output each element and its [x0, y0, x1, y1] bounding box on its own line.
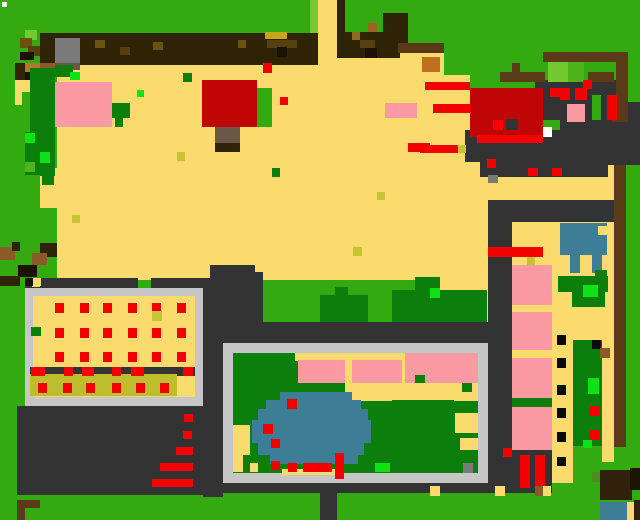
map-rect [557, 432, 566, 442]
map-rect [17, 508, 25, 520]
pink-plot-1 [512, 265, 552, 305]
map-rect [18, 265, 37, 277]
east-horizontal-path [488, 200, 617, 222]
rock [55, 38, 80, 63]
map-rect [420, 145, 458, 153]
map-rect [40, 152, 50, 163]
map-rect [131, 367, 144, 376]
map-rect [112, 383, 121, 393]
map-rect [31, 327, 41, 336]
map-rect [12, 242, 20, 251]
map-rect [128, 303, 137, 313]
map-rect [567, 104, 585, 122]
map-rect [433, 104, 471, 113]
map-rect [500, 72, 545, 82]
map-rect [55, 352, 64, 362]
map-rect [280, 97, 288, 105]
map-rect [377, 192, 385, 200]
map-rect [271, 461, 280, 470]
map-rect [160, 463, 193, 471]
red-house [202, 80, 257, 127]
map-rect [80, 328, 89, 338]
map-rect [15, 63, 25, 72]
map-rect [152, 479, 193, 487]
bushes [320, 295, 368, 322]
map-rect [177, 152, 185, 161]
corner-marker [2, 2, 7, 7]
south-path-stub [320, 493, 337, 520]
west-path [25, 278, 138, 288]
map-rect [86, 383, 95, 393]
tree-line [30, 68, 55, 138]
map-rect [353, 247, 362, 256]
map-rect [63, 383, 72, 393]
map-rect [495, 486, 505, 496]
map-rect [493, 120, 503, 130]
game-screen [0, 0, 640, 520]
map-rect [152, 311, 162, 321]
map-rect [560, 120, 640, 165]
map-rect [263, 424, 273, 434]
map-rect [592, 472, 600, 482]
pink-plot-3 [512, 358, 552, 398]
map-rect [277, 47, 287, 57]
map-rect [458, 145, 466, 153]
map-rect [33, 278, 41, 286]
map-rect [55, 328, 64, 338]
map-rect [480, 160, 608, 177]
map-rect [634, 500, 640, 520]
game-map[interactable] [0, 0, 640, 520]
southeast-hut [600, 470, 632, 500]
map-rect [588, 378, 599, 394]
map-rect [590, 406, 600, 416]
map-rect [607, 95, 617, 120]
map-rect [583, 285, 598, 297]
map-rect [183, 367, 193, 376]
map-rect [392, 400, 454, 448]
map-rect [233, 425, 250, 455]
map-rect [335, 453, 344, 479]
map-rect [288, 463, 297, 472]
map-rect [595, 270, 607, 278]
southeast-water [600, 502, 627, 520]
map-rect [310, 0, 318, 33]
map-rect [255, 272, 263, 323]
map-rect [425, 82, 470, 90]
map-rect [477, 135, 543, 143]
map-rect [375, 463, 390, 472]
map-rect [598, 226, 607, 235]
map-rect [203, 483, 512, 493]
garden-plot [548, 62, 568, 82]
map-rect [575, 88, 587, 100]
map-rect [560, 88, 570, 100]
map-rect [128, 352, 137, 362]
map-rect [183, 431, 192, 439]
east-fence [614, 165, 626, 447]
bench [17, 500, 40, 508]
map-rect [630, 468, 640, 490]
pink-house [55, 82, 112, 127]
map-rect [152, 352, 161, 362]
map-rect [25, 133, 35, 143]
map-rect [233, 455, 243, 472]
map-rect [512, 398, 552, 407]
map-rect [183, 73, 192, 82]
north-path [318, 0, 337, 65]
map-rect [303, 463, 332, 472]
map-rect [112, 367, 121, 376]
map-rect [352, 32, 360, 40]
map-rect [520, 455, 530, 488]
map-rect [360, 40, 375, 48]
map-rect [462, 383, 472, 392]
map-rect [153, 42, 163, 50]
map-rect [265, 32, 287, 39]
map-rect [600, 348, 610, 358]
map-rect [160, 383, 169, 393]
map-rect [25, 278, 33, 286]
map-rect [385, 103, 417, 118]
map-rect [177, 328, 186, 338]
map-rect [257, 88, 272, 127]
mid-path [200, 322, 488, 343]
map-rect [15, 72, 25, 80]
map-rect [238, 40, 246, 48]
map-rect [602, 340, 614, 462]
map-rect [177, 303, 186, 313]
map-rect [488, 175, 498, 183]
map-rect [463, 463, 473, 473]
map-rect [115, 118, 123, 127]
red-bar [488, 247, 543, 257]
map-rect [15, 92, 22, 105]
map-rect [527, 256, 535, 265]
map-rect [82, 367, 94, 376]
map-rect [32, 253, 47, 265]
map-rect [250, 463, 258, 472]
map-rect [103, 352, 112, 362]
map-rect [103, 303, 112, 313]
map-rect [335, 287, 348, 296]
map-rect [215, 143, 240, 152]
map-rect [506, 119, 518, 130]
barn-fence [543, 52, 623, 62]
map-rect [272, 168, 280, 177]
map-rect [455, 413, 478, 433]
map-rect [543, 127, 552, 137]
map-rect [25, 162, 35, 172]
map-rect [557, 408, 566, 418]
map-rect [55, 303, 64, 313]
map-rect [528, 168, 538, 176]
map-rect [64, 367, 73, 376]
map-rect [512, 63, 520, 72]
map-rect [422, 57, 440, 72]
map-rect [503, 448, 512, 457]
map-rect [365, 48, 377, 58]
map-rect [535, 455, 545, 488]
map-rect [557, 385, 566, 395]
map-rect [557, 457, 566, 466]
map-rect [184, 414, 193, 422]
map-rect [0, 276, 20, 286]
map-rect [152, 328, 161, 338]
map-rect [552, 168, 562, 176]
map-rect [271, 439, 280, 448]
map-rect [103, 328, 112, 338]
map-rect [557, 335, 566, 345]
map-rect [120, 47, 130, 55]
map-rect [535, 486, 543, 496]
map-rect [512, 305, 552, 312]
map-rect [570, 255, 580, 273]
map-rect [15, 80, 30, 92]
map-rect [80, 303, 89, 313]
map-rect [128, 328, 137, 338]
map-rect [177, 352, 186, 362]
pink-plot-4 [512, 407, 552, 450]
pink-plot-2 [512, 312, 552, 350]
map-rect [430, 486, 440, 496]
north-fence [398, 43, 444, 53]
map-rect [203, 286, 223, 497]
map-rect [590, 430, 600, 440]
garden-house-1 [298, 360, 345, 383]
map-rect [337, 0, 345, 32]
map-rect [176, 447, 193, 455]
map-rect [38, 383, 47, 393]
map-rect [568, 62, 584, 82]
map-rect [583, 440, 592, 448]
map-rect [80, 352, 89, 362]
map-rect [398, 22, 408, 43]
map-rect [287, 399, 297, 409]
map-rect [460, 438, 478, 450]
map-rect [136, 383, 145, 393]
map-rect [368, 23, 377, 32]
map-rect [20, 52, 34, 60]
map-rect [31, 367, 45, 376]
map-rect [30, 374, 177, 396]
map-rect [543, 486, 551, 496]
map-rect [72, 215, 80, 223]
map-rect [430, 288, 440, 298]
map-rect [95, 40, 105, 48]
map-rect [70, 72, 80, 80]
map-rect [112, 103, 130, 118]
map-rect [420, 75, 470, 180]
map-rect [583, 80, 592, 89]
red-house-door [215, 127, 240, 143]
map-rect [512, 350, 552, 358]
map-rect [345, 383, 478, 401]
map-rect [137, 90, 144, 97]
map-rect [557, 358, 566, 368]
map-rect [465, 160, 480, 177]
map-rect [42, 175, 54, 185]
garden-house-2 [352, 360, 402, 383]
map-rect [592, 95, 601, 120]
map-rect [263, 63, 272, 73]
map-rect [487, 159, 496, 168]
